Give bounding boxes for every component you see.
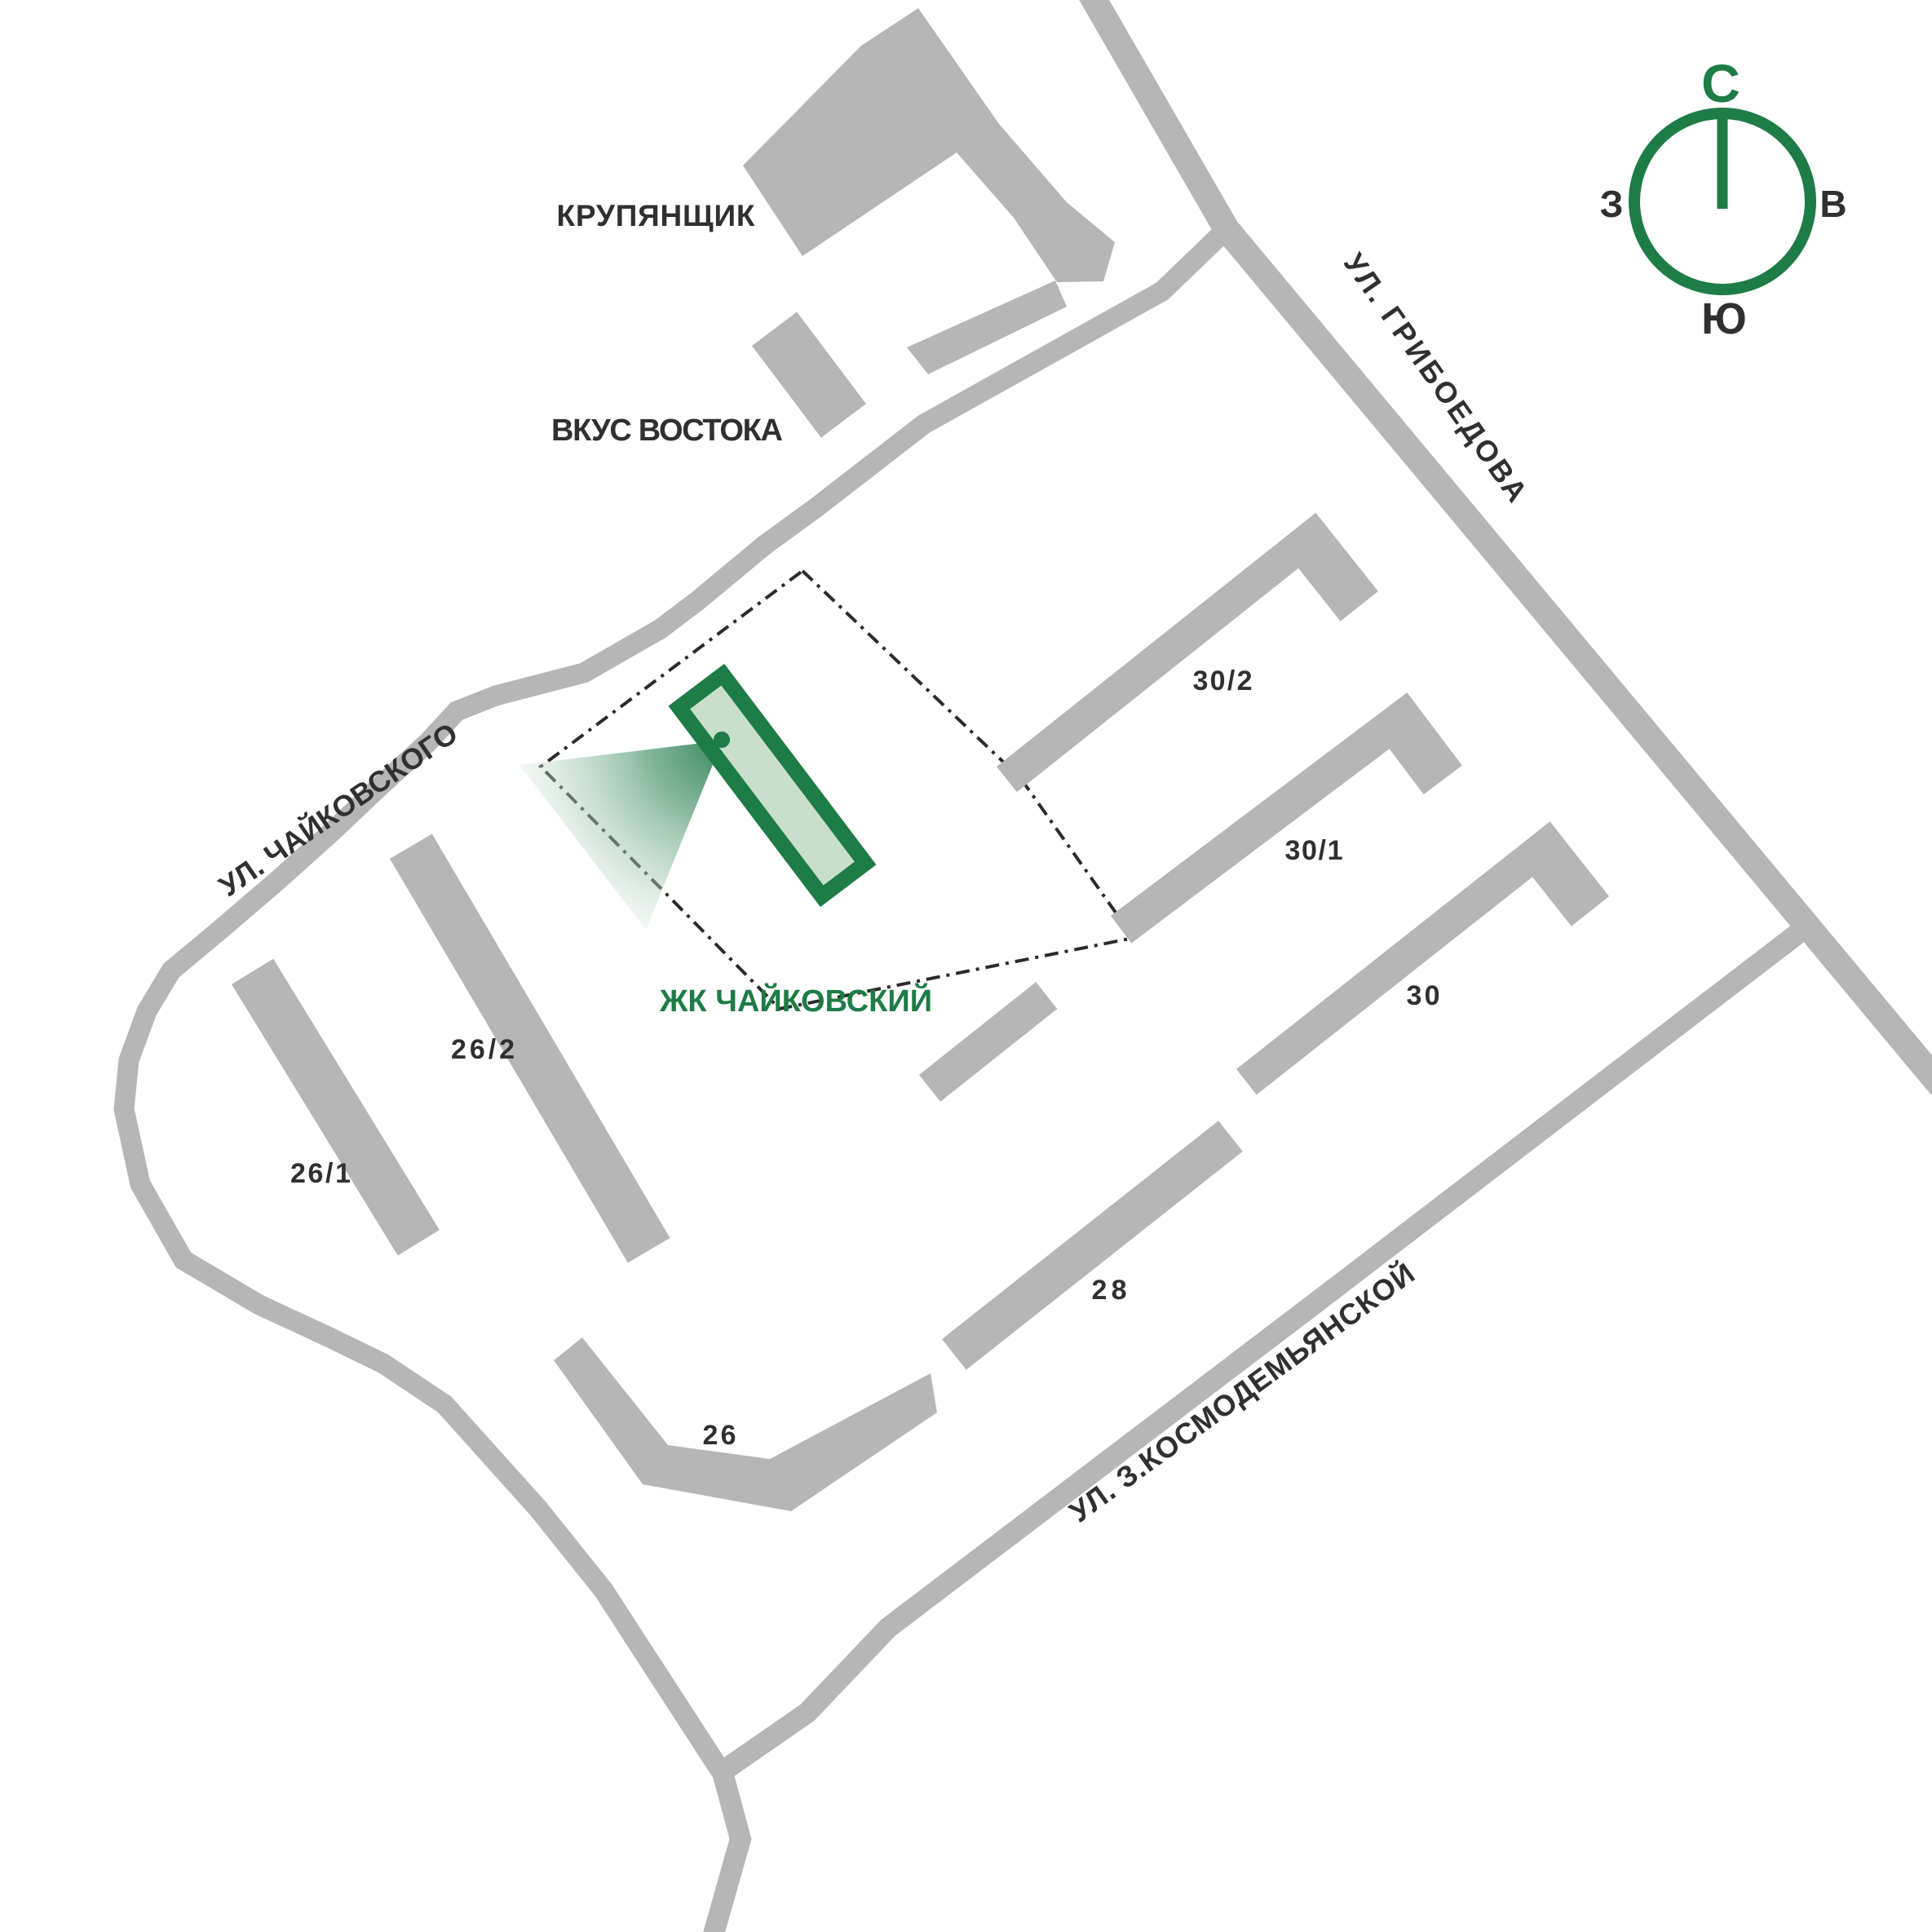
svg-text:ЖК ЧАЙКОВСКИЙ: ЖК ЧАЙКОВСКИЙ: [659, 982, 932, 1019]
svg-text:30/2: 30/2: [1193, 665, 1253, 696]
svg-text:30/1: 30/1: [1285, 835, 1343, 866]
svg-text:26/1: 26/1: [290, 1158, 351, 1189]
svg-text:В: В: [1819, 183, 1846, 225]
svg-text:С: С: [1701, 53, 1740, 113]
svg-text:З: З: [1600, 183, 1624, 225]
svg-text:ВКУС ВОСТОКА: ВКУС ВОСТОКА: [551, 413, 783, 448]
svg-text:КРУПЯНЩИК: КРУПЯНЩИК: [557, 199, 755, 232]
svg-text:26/2: 26/2: [451, 1034, 515, 1065]
svg-text:Ю: Ю: [1701, 294, 1747, 343]
